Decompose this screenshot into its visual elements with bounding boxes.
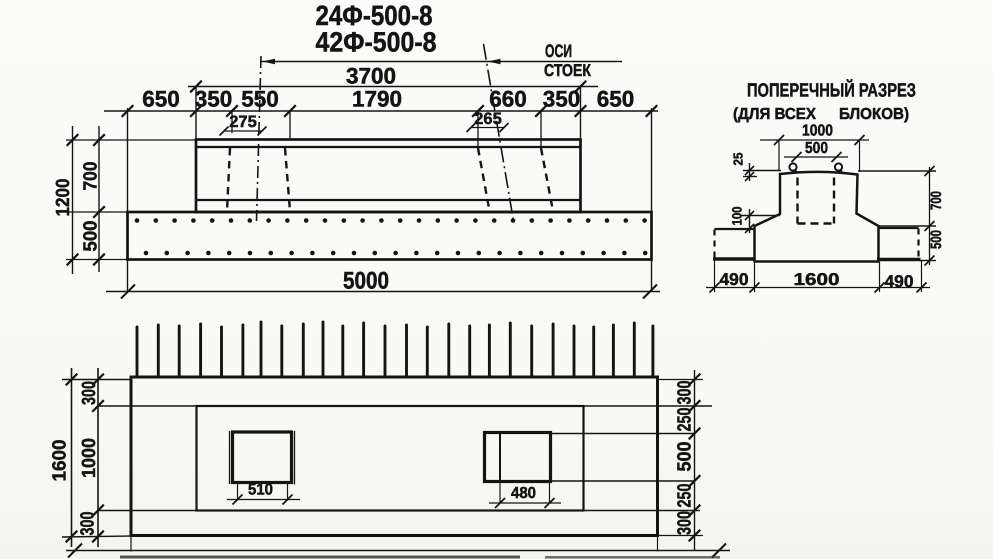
svg-text:42Ф-500-8: 42Ф-500-8	[316, 27, 437, 58]
svg-text:300: 300	[675, 511, 696, 535]
svg-text:1000: 1000	[79, 438, 100, 478]
svg-text:490: 490	[720, 270, 749, 289]
svg-text:250: 250	[675, 408, 696, 432]
svg-text:1000: 1000	[802, 123, 833, 140]
svg-text:300: 300	[79, 381, 100, 405]
svg-text:700: 700	[928, 191, 945, 210]
svg-text:350: 350	[543, 87, 581, 112]
svg-text:СТОЕК: СТОЕК	[544, 61, 592, 80]
svg-text:500: 500	[675, 442, 696, 472]
svg-text:1790: 1790	[352, 87, 402, 112]
svg-text:490: 490	[885, 272, 914, 291]
svg-text:510: 510	[248, 482, 273, 499]
svg-text:25: 25	[731, 153, 746, 166]
svg-text:500: 500	[928, 230, 945, 249]
svg-text:650: 650	[597, 87, 635, 112]
svg-text:700: 700	[81, 162, 102, 191]
svg-text:300: 300	[675, 381, 696, 405]
svg-text:(ДЛЯ ВСЕХ: (ДЛЯ ВСЕХ	[733, 106, 816, 123]
svg-text:500: 500	[81, 221, 102, 252]
svg-text:1600: 1600	[50, 440, 71, 482]
svg-text:350: 350	[195, 87, 233, 112]
svg-text:100: 100	[730, 207, 745, 226]
svg-text:5000: 5000	[343, 268, 389, 295]
svg-text:250: 250	[675, 484, 696, 508]
svg-text:3700: 3700	[346, 64, 396, 89]
svg-text:1600: 1600	[794, 270, 840, 289]
svg-text:300: 300	[78, 512, 99, 536]
svg-text:ПОПЕРЕЧНЫЙ РАЗРЕЗ: ПОПЕРЕЧНЫЙ РАЗРЕЗ	[747, 79, 916, 102]
svg-text:650: 650	[142, 87, 180, 112]
svg-text:480: 480	[511, 485, 536, 502]
svg-text:500: 500	[805, 140, 828, 157]
svg-text:1200: 1200	[53, 179, 74, 217]
svg-text:275: 275	[229, 113, 257, 131]
svg-text:БЛОКОВ): БЛОКОВ)	[839, 106, 909, 123]
svg-text:ОСИ: ОСИ	[545, 41, 572, 61]
